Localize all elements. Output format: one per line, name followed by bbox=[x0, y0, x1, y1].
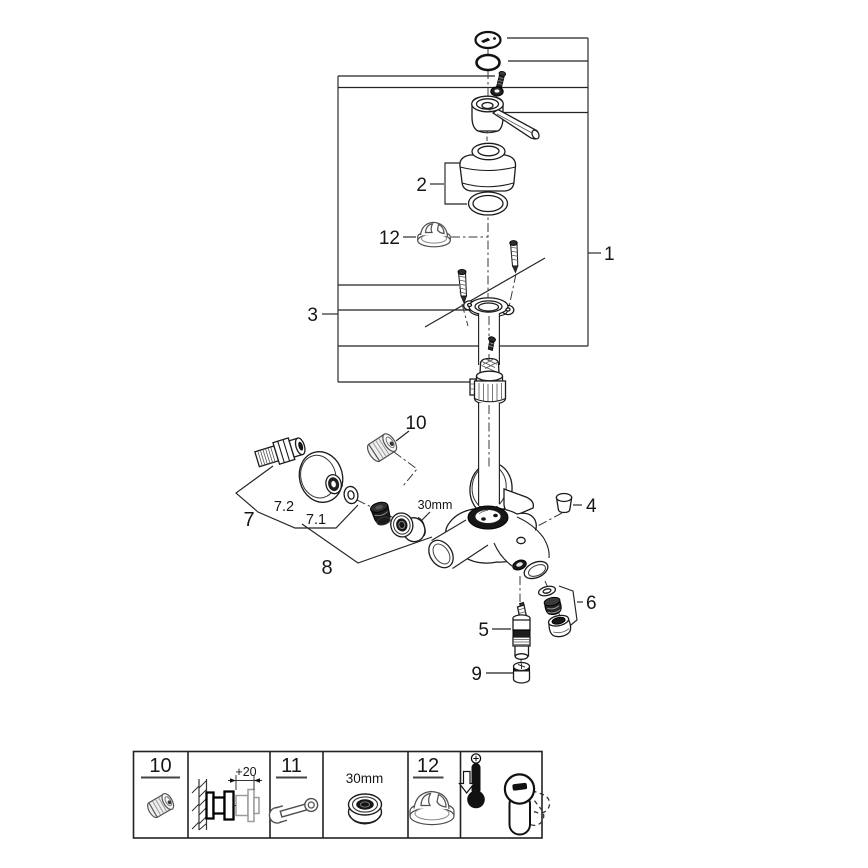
legend-cell-nut-size: 30mm bbox=[346, 771, 384, 824]
legend-cell-wrench: 11 bbox=[268, 755, 320, 825]
callout-label-8: 8 bbox=[321, 557, 332, 579]
mounting-screw-left bbox=[458, 269, 467, 303]
handle-fixing-screw bbox=[496, 71, 506, 88]
callout-label-3: 3 bbox=[307, 305, 318, 326]
callout-label-10: 10 bbox=[405, 413, 426, 434]
lever-handle bbox=[472, 96, 541, 140]
aerator-insert bbox=[543, 596, 562, 616]
union-escutcheon bbox=[294, 447, 348, 507]
aerator-washer bbox=[538, 585, 557, 598]
aerator-housing bbox=[547, 614, 572, 639]
diagram-canvas: 1 2 3 4 5 6 7 7.2 7.1 8 9 10 12 30mm 10 bbox=[0, 0, 868, 868]
mounting-screw-right bbox=[510, 241, 518, 273]
extension-adapter-icon bbox=[145, 792, 176, 820]
hex-nut-icon bbox=[349, 794, 382, 824]
temperature-limiter-cap-icon bbox=[410, 792, 454, 825]
callout-label-12: 12 bbox=[379, 228, 400, 249]
cartridge-sleeve bbox=[460, 143, 516, 191]
spout-nut-size-label: 30mm bbox=[418, 498, 453, 512]
callout-label-7: 7 bbox=[243, 509, 254, 531]
legend-nut-size: 30mm bbox=[346, 771, 384, 786]
stop-ring bbox=[514, 663, 530, 684]
callout-label-1: 1 bbox=[604, 244, 615, 265]
legend-cell-extension: 10 bbox=[141, 755, 180, 820]
handle-nut bbox=[491, 87, 503, 96]
callout-label-4: 4 bbox=[586, 496, 597, 517]
parts bbox=[254, 32, 572, 683]
check-valve-filter bbox=[369, 500, 392, 527]
callout-label-7-1: 7.1 bbox=[306, 512, 326, 528]
legend-cell-temp-adjust bbox=[459, 754, 552, 835]
callout-label-9: 9 bbox=[471, 664, 482, 685]
extension-adapter bbox=[365, 432, 399, 464]
legend-cell-temp-cap: 12 bbox=[410, 755, 454, 825]
handle-cap bbox=[476, 32, 501, 48]
legend-number-12: 12 bbox=[417, 755, 439, 777]
callout-label-7-2: 7.2 bbox=[274, 499, 294, 515]
exploded-parts-diagram: 1 2 3 4 5 6 7 7.2 7.1 8 9 10 12 30mm 10 bbox=[0, 0, 868, 868]
temperature-adjust-handle-icon bbox=[459, 754, 552, 835]
temp-limiter-cap bbox=[418, 222, 451, 247]
wall-extension-section-icon bbox=[192, 775, 262, 830]
open-end-wrench-icon bbox=[268, 796, 320, 825]
legend-dimension: +20 bbox=[235, 765, 256, 779]
legend-table: 10 bbox=[134, 752, 553, 839]
callout-label-6: 6 bbox=[586, 593, 597, 614]
union-washer bbox=[343, 485, 360, 505]
legend-number-11: 11 bbox=[281, 755, 302, 777]
legend-cell-wall-depth: +20 bbox=[192, 765, 262, 830]
diverter-cartridge bbox=[513, 602, 530, 659]
mixer-cartridge bbox=[470, 359, 506, 405]
cap-o-ring bbox=[477, 55, 500, 70]
callout-label-5: 5 bbox=[478, 620, 489, 641]
callout-label-2: 2 bbox=[416, 175, 427, 196]
connection-plug bbox=[556, 494, 571, 513]
legend-number-10: 10 bbox=[149, 755, 171, 777]
sleeve-o-ring bbox=[469, 192, 508, 215]
s-union bbox=[254, 434, 308, 470]
callout-lines bbox=[236, 38, 601, 673]
